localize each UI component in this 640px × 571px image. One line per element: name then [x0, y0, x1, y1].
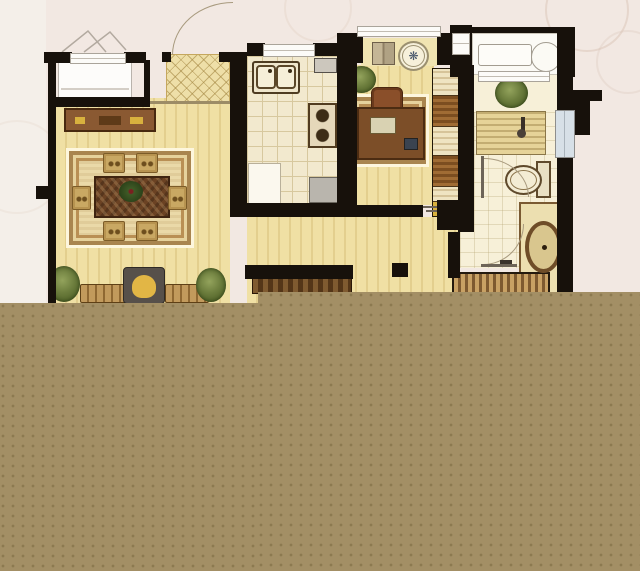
wall-hall-stub — [392, 263, 408, 277]
floor-plan-image: ❋ — [0, 0, 640, 571]
bay-window-top — [70, 53, 126, 64]
stove-icon — [308, 103, 337, 148]
fan-medallion-icon: ❋ — [398, 41, 429, 71]
bathroom-window — [555, 110, 575, 158]
wall-tv — [245, 265, 353, 279]
wood-shelf — [433, 156, 459, 187]
wall-entry-post-a — [162, 52, 171, 62]
sideboard-console — [64, 108, 156, 132]
flower-centerpiece — [119, 181, 143, 202]
kitchen-island — [248, 163, 281, 204]
sofa-bench-left — [80, 284, 126, 303]
shower-head-icon — [521, 117, 525, 135]
wall-bath-right-a — [557, 75, 573, 112]
wall-kitchen-top-b — [313, 43, 339, 56]
plant-icon — [196, 268, 226, 302]
wall-balcony-top — [470, 27, 560, 33]
wall-bath-right-b — [557, 156, 573, 295]
armchair — [123, 267, 165, 304]
kitchen-switch-panel — [314, 58, 337, 73]
wall-bath-left-low — [448, 232, 460, 278]
folding-shutter-icon — [372, 42, 395, 65]
wall-top-b — [124, 52, 146, 63]
wall-niche-left — [144, 60, 150, 102]
wall-bay-bottom — [48, 97, 150, 107]
wall-left — [48, 52, 56, 303]
dining-chair — [168, 186, 187, 210]
brown-overlay-left — [0, 303, 258, 571]
dining-chair — [72, 186, 91, 210]
refrigerator — [309, 177, 338, 203]
dining-chair — [136, 221, 158, 241]
wall-study-bottom-a — [341, 205, 423, 217]
kitchen-window — [263, 44, 315, 57]
balcony-door-window — [478, 71, 550, 82]
balcony-niche — [452, 33, 470, 55]
bay-window-casement-icon — [60, 28, 128, 54]
wood-shelf — [433, 96, 459, 127]
linen-shelf — [433, 127, 459, 156]
desk-tablet — [404, 138, 418, 150]
entry-threshold — [150, 101, 230, 104]
bay-window-sill — [58, 62, 132, 100]
wardrobe-shelves — [432, 68, 460, 217]
laundry-counter — [478, 44, 532, 66]
wall-topright-arm — [573, 90, 602, 101]
wall-balcony-right — [557, 27, 575, 77]
plant-icon — [495, 78, 528, 108]
wall-entry-kitchen — [230, 52, 247, 217]
wall-study-bath — [458, 65, 474, 232]
entry-door-arc-icon — [172, 2, 233, 55]
shower-stall — [476, 111, 546, 155]
bath-door-leaf — [481, 264, 517, 267]
sink-basin-icon — [256, 65, 276, 89]
wall-top-a — [44, 52, 72, 63]
fan-glyph: ❋ — [408, 50, 418, 62]
dining-chair — [103, 153, 125, 173]
laptop — [370, 117, 396, 134]
wall-kitchen-bottom — [230, 203, 347, 217]
sink-basin-icon — [276, 65, 296, 89]
dining-chair — [136, 153, 158, 173]
dining-chair — [103, 221, 125, 241]
wall-study-top-a — [339, 33, 363, 63]
brown-overlay-right — [258, 292, 640, 571]
study-window — [357, 26, 441, 37]
door-stop — [500, 260, 512, 264]
wall-left-stub — [36, 186, 48, 199]
